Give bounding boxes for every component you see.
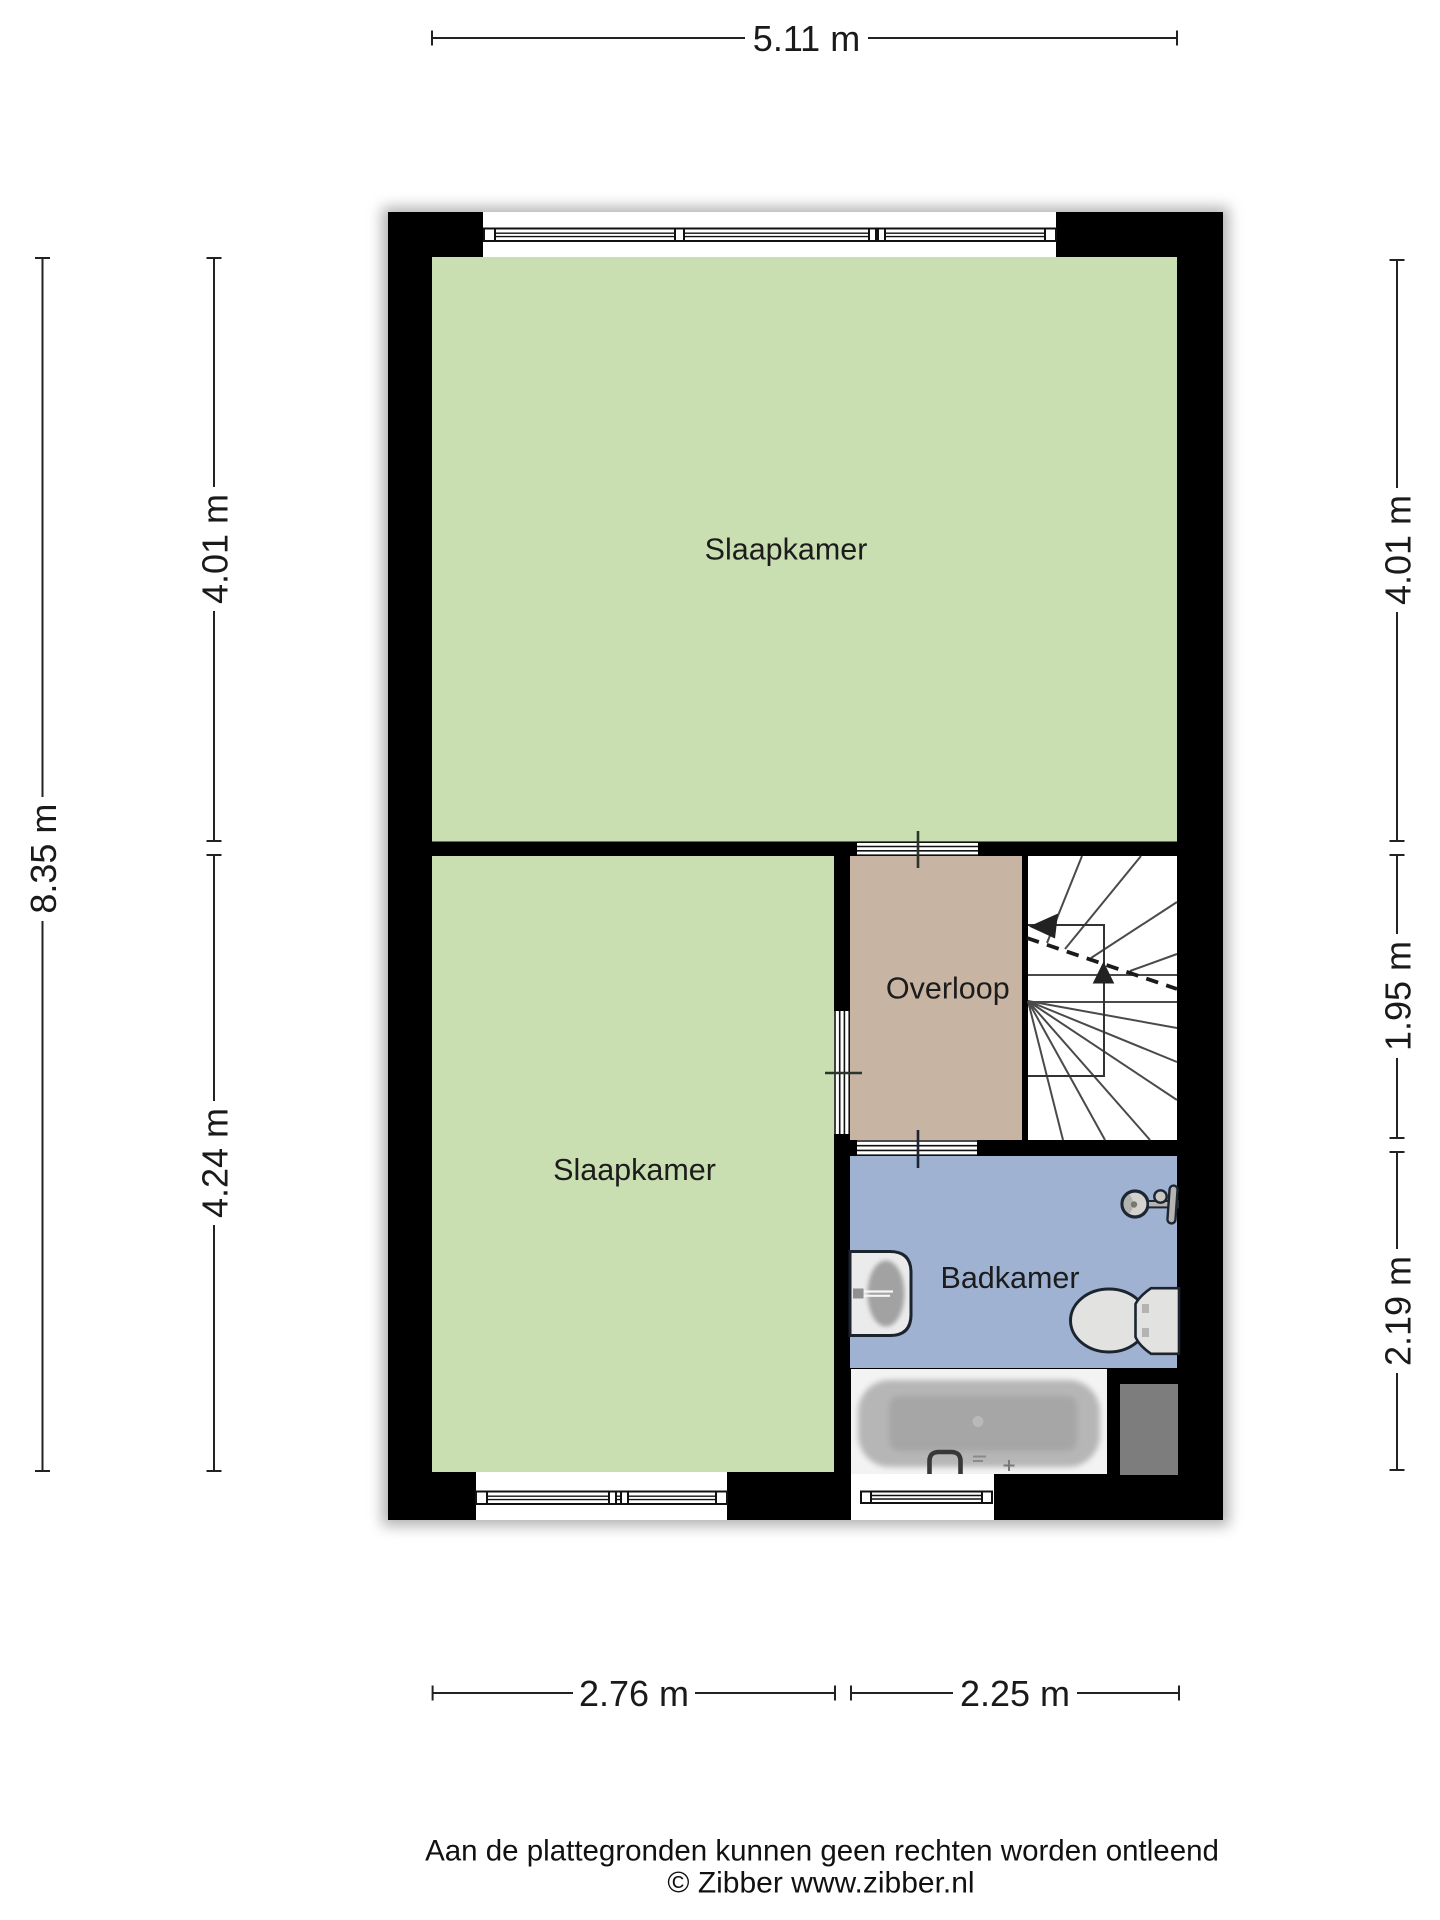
- svg-text:© Zibber www.zibber.nl: © Zibber www.zibber.nl: [667, 1867, 974, 1900]
- svg-text:4.01 m: 4.01 m: [1377, 495, 1418, 605]
- svg-text:2.25 m: 2.25 m: [960, 1673, 1070, 1714]
- svg-text:5.11 m: 5.11 m: [753, 18, 860, 59]
- svg-text:Overloop: Overloop: [886, 972, 1010, 1006]
- svg-text:Badkamer: Badkamer: [940, 1261, 1079, 1295]
- svg-text:8.35 m: 8.35 m: [23, 804, 64, 914]
- svg-text:Slaapkamer: Slaapkamer: [705, 533, 868, 567]
- svg-text:2.19 m: 2.19 m: [1377, 1256, 1418, 1366]
- svg-text:4.01 m: 4.01 m: [194, 494, 235, 604]
- svg-text:4.24 m: 4.24 m: [194, 1108, 235, 1218]
- svg-text:2.76 m: 2.76 m: [579, 1673, 689, 1714]
- svg-text:Aan de plattegronden kunnen ge: Aan de plattegronden kunnen geen rechten…: [425, 1835, 1219, 1868]
- svg-text:1.95 m: 1.95 m: [1377, 941, 1418, 1051]
- svg-text:Slaapkamer: Slaapkamer: [553, 1153, 716, 1187]
